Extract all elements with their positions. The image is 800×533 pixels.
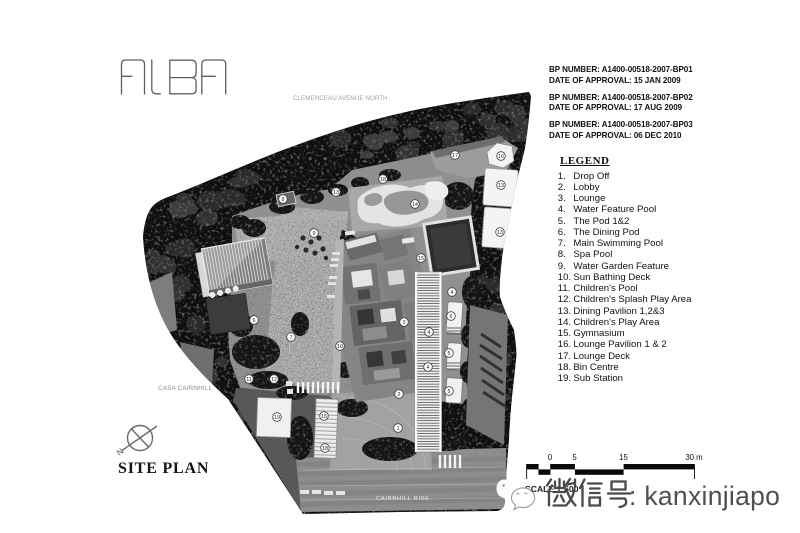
svg-text:13: 13 [498,183,504,189]
svg-text:CASA CAIRNHILL: CASA CAIRNHILL [158,385,213,392]
svg-text:5: 5 [448,351,451,357]
svg-text:5: 5 [448,389,451,395]
svg-text:12: 12 [271,377,277,383]
svg-text:7: 7 [290,335,293,341]
svg-text:10: 10 [337,344,343,350]
svg-text:13: 13 [333,190,339,196]
svg-text:4: 4 [451,290,454,296]
svg-text:15: 15 [321,414,327,420]
svg-text:19: 19 [274,415,280,421]
svg-text:6: 6 [450,314,453,320]
svg-text:CLEMENCEAU AVENUE NORTH: CLEMENCEAU AVENUE NORTH [293,95,388,102]
svg-text:8: 8 [282,197,285,203]
svg-text:2: 2 [398,392,401,398]
svg-text:15: 15 [619,453,628,462]
svg-text:SITE PLAN: SITE PLAN [118,460,209,477]
svg-text:0: 0 [548,453,553,462]
svg-text:15: 15 [418,256,424,262]
svg-text:N: N [115,447,125,458]
svg-text:13: 13 [497,230,503,236]
svg-text:30 m: 30 m [685,453,702,462]
svg-text:9: 9 [313,231,316,237]
svg-text:5: 5 [572,453,577,462]
svg-text:14: 14 [412,202,418,208]
svg-text:CAIRNHILL RISE: CAIRNHILL RISE [376,496,430,502]
svg-text:16: 16 [498,154,504,160]
svg-text:3: 3 [403,320,406,326]
svg-text:4: 4 [427,365,430,371]
svg-text:17: 17 [452,153,458,159]
svg-text:11: 11 [246,377,252,383]
svg-text:18: 18 [322,446,328,452]
svg-text:6: 6 [253,318,256,324]
svg-text:4: 4 [428,330,431,336]
svg-text:1: 1 [397,426,400,432]
svg-text:18: 18 [380,177,386,183]
svg-text:: kanxinjiapo: : kanxinjiapo [629,481,780,511]
